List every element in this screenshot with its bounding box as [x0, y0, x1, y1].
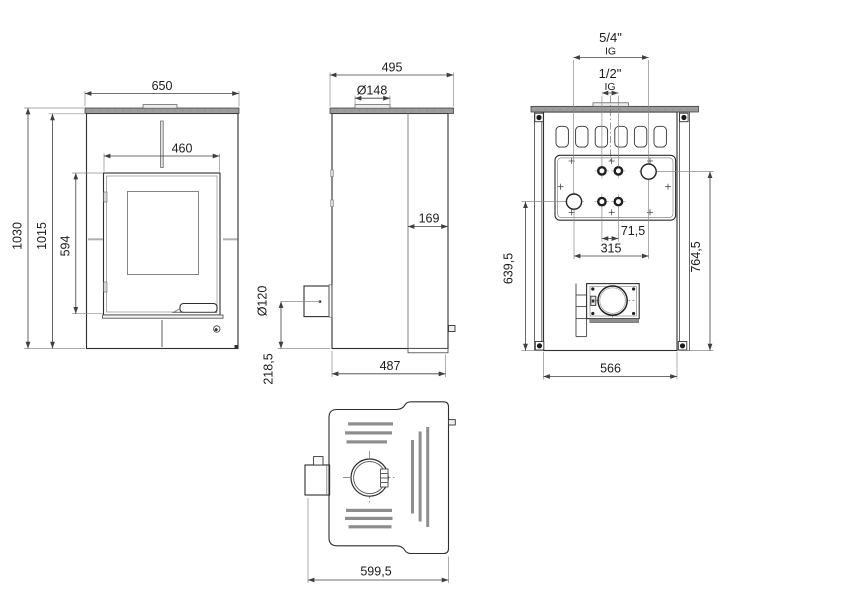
dim-label-d148: Ø148	[357, 84, 388, 98]
dim-label-594: 594	[59, 236, 73, 257]
rear-flue-outlet	[598, 286, 627, 315]
dim-label-315: 315	[601, 242, 622, 256]
rear-fitting-small-4	[615, 198, 622, 205]
front-air-knob	[214, 326, 220, 332]
dim-label-218-5: 218,5	[262, 353, 276, 384]
dim-label-599-5: 599,5	[360, 565, 391, 579]
front-door-hinge-bottom	[104, 282, 107, 292]
rear-side-panel-right	[680, 112, 690, 351]
front-air-lever	[161, 121, 164, 168]
dim-label-ig-large: IG	[605, 46, 616, 58]
dim-label-5-4: 5/4"	[599, 30, 622, 45]
stove-technical-drawing: 650 460 1030 1015 594	[0, 0, 842, 596]
dim-label-ig-small: IG	[604, 81, 615, 93]
dim-label-1015: 1015	[35, 222, 49, 250]
dim-label-495: 495	[382, 61, 403, 75]
rear-view: 5/4" IG 1/2" IG 71,5 315 639,5 764,5	[502, 30, 714, 380]
side-base-strip	[408, 349, 448, 353]
dim-label-1030: 1030	[11, 222, 25, 250]
front-door-handle	[173, 304, 217, 313]
rear-fitting-large-right	[641, 164, 656, 179]
dim-label-d120: Ø120	[256, 286, 270, 317]
front-door-glass	[128, 192, 199, 275]
front-flue-collar	[143, 105, 177, 109]
rear-vent-slots	[556, 126, 666, 147]
top-view: 599,5	[305, 402, 455, 583]
top-rear-outlet	[305, 457, 330, 496]
side-body	[332, 114, 448, 349]
front-view: 650 460 1030 1015 594	[11, 79, 240, 349]
rear-fitting-panel	[555, 155, 676, 220]
top-collar-clamp	[381, 469, 389, 487]
side-edge-tick-2	[331, 200, 334, 207]
dim-label-169: 169	[419, 212, 440, 226]
side-flue-collar	[355, 105, 390, 109]
dim-label-1-2: 1/2"	[599, 66, 622, 81]
rear-fitting-small-3	[598, 198, 605, 205]
dim-label-639-5: 639,5	[502, 253, 516, 284]
rear-outlet-bracket	[576, 284, 587, 337]
dim-label-566: 566	[600, 362, 621, 376]
front-door-hinge-top	[104, 192, 107, 202]
rear-fitting-small-1	[598, 167, 605, 174]
rear-flue-housing	[576, 284, 639, 337]
dim-label-487: 487	[380, 359, 401, 373]
front-door-inner	[107, 176, 218, 312]
dim-label-71-5: 71,5	[621, 224, 645, 238]
drawing-canvas: 650 460 1030 1015 594	[0, 0, 842, 596]
side-view: 495 Ø148 169 487 Ø120 218,5	[256, 61, 456, 385]
rear-fitting-large-left	[566, 194, 581, 209]
side-edge-tick-1	[331, 170, 334, 177]
dim-label-650: 650	[152, 79, 173, 93]
dim-label-460: 460	[172, 142, 193, 156]
front-plinth	[103, 315, 224, 318]
side-door-handle	[449, 326, 456, 332]
side-rear-outlet	[304, 285, 332, 317]
front-corner-mark	[235, 345, 239, 348]
top-flue-collar	[343, 451, 397, 505]
rear-fitting-small-2	[615, 167, 622, 174]
rear-housing-bar	[590, 319, 639, 323]
rear-side-panel-left	[535, 112, 542, 351]
dim-label-764-5: 764,5	[689, 241, 703, 272]
front-door-frame	[104, 173, 221, 315]
front-dimensions: 650 460 1030 1015 594	[11, 79, 240, 349]
top-door-handle	[449, 420, 456, 425]
